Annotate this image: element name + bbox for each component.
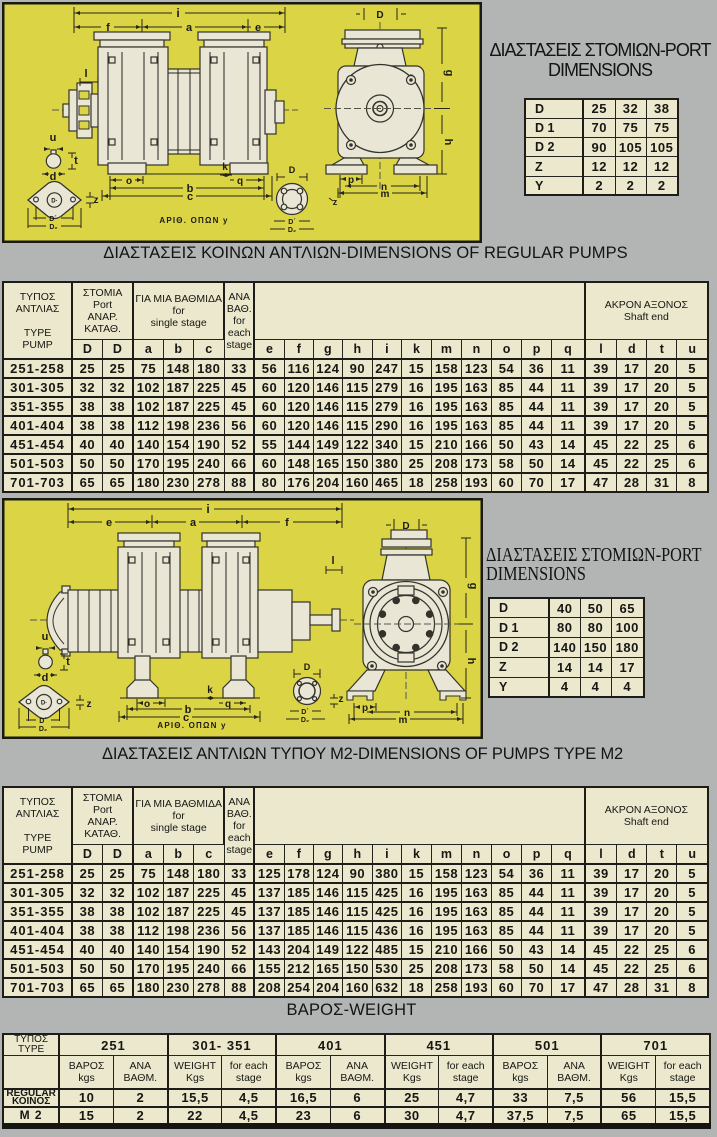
svg-text:o: o [144, 699, 150, 710]
svg-text:u: u [42, 631, 49, 643]
svg-text:t: t [66, 656, 70, 668]
svg-text:h: h [465, 658, 477, 665]
svg-text:D₂: D₂ [301, 717, 309, 724]
svg-text:z: z [333, 197, 338, 207]
svg-text:D: D [376, 10, 383, 21]
svg-text:m: m [381, 189, 390, 200]
svg-text:g: g [443, 70, 455, 77]
svg-text:f: f [285, 517, 289, 529]
svg-text:D·: D· [51, 199, 57, 205]
svg-text:k: k [222, 162, 228, 173]
svg-text:u: u [50, 132, 57, 144]
svg-text:a: a [186, 22, 193, 34]
svg-text:m: m [399, 715, 408, 726]
svg-text:D: D [289, 165, 296, 175]
svg-text:k: k [207, 685, 213, 696]
svg-text:d: d [42, 672, 49, 684]
svg-text:ΑΡΙΘ. ΟΠΩΝ y: ΑΡΙΘ. ΟΠΩΝ y [157, 721, 226, 730]
svg-text:z: z [339, 694, 344, 705]
svg-text:g: g [467, 583, 479, 590]
svg-text:i: i [176, 6, 179, 20]
svg-text:D´: D´ [301, 709, 309, 716]
svg-text:D: D [304, 662, 311, 672]
svg-text:q: q [225, 699, 231, 710]
svg-text:t: t [74, 155, 78, 167]
svg-text:a: a [190, 517, 197, 529]
svg-text:q: q [237, 176, 243, 187]
svg-text:ΑΡΙΘ. ΟΠΩΝ y: ΑΡΙΘ. ΟΠΩΝ y [159, 216, 228, 225]
svg-text:D·: D· [41, 701, 47, 707]
svg-text:D₂: D₂ [288, 227, 296, 234]
svg-text:l: l [331, 555, 334, 567]
svg-text:D₂: D₂ [49, 224, 57, 231]
svg-text:e: e [106, 517, 112, 529]
svg-text:z: z [94, 195, 99, 206]
svg-text:i: i [206, 502, 209, 516]
svg-text:D´: D´ [288, 219, 296, 226]
svg-text:l: l [84, 68, 87, 80]
svg-text:z: z [87, 699, 92, 710]
svg-text:D´: D´ [39, 718, 47, 725]
svg-text:c: c [187, 191, 193, 203]
svg-text:D₂: D₂ [39, 726, 47, 733]
svg-text:h: h [442, 139, 454, 146]
svg-text:o: o [126, 176, 132, 187]
svg-text:D´: D´ [49, 216, 57, 223]
